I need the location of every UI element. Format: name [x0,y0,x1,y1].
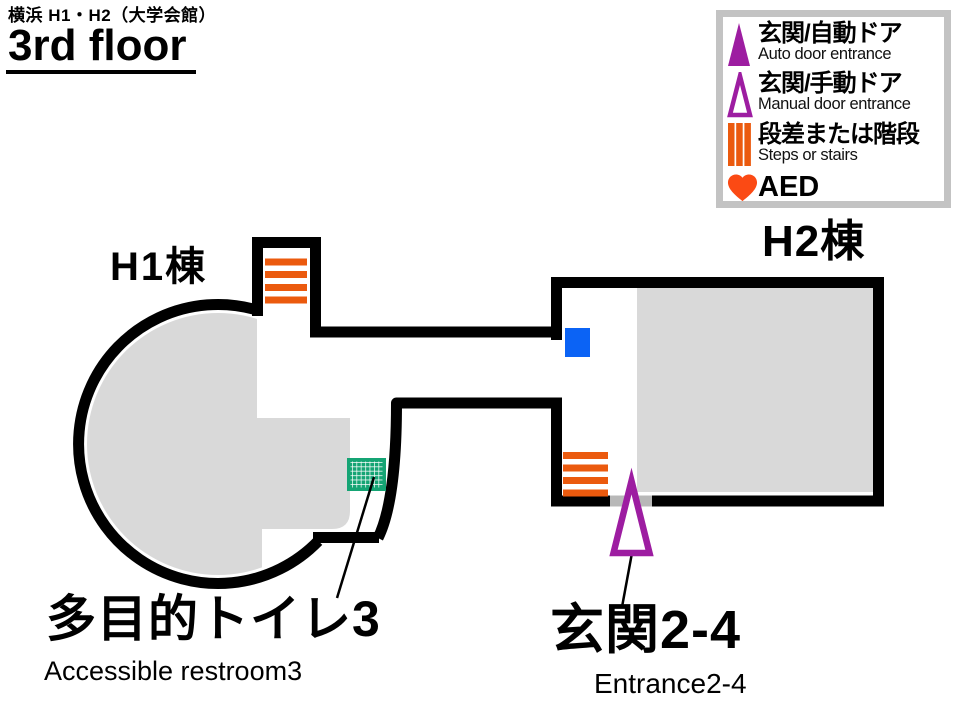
steps-bars-icon [727,123,758,166]
h1-room-band-fill [257,418,350,529]
page-title: 3rd floor [6,24,196,74]
legend-row-manual-door: 玄関/手動ドア Manual door entrance [727,72,941,118]
h2-room-fill [637,288,873,492]
legend-row-aed: AED [727,171,941,204]
legend-label-aed: AED [758,171,819,204]
aed-heart-icon [727,173,758,203]
restroom-callout-jp: 多目的トイレ3 [46,594,381,644]
building-label-h1: H1棟 [110,247,207,287]
legend-label-manual-door: 玄関/手動ドア Manual door entrance [758,72,911,114]
accessible-restroom-marker [347,458,386,491]
stairs-marker-h2 [563,452,608,497]
floor-map-page: 横浜 H1・H2（大学会館） 3rd floor H1棟 H2棟 多目的トイレ3… [0,0,960,720]
legend-row-auto-door: 玄関/自動ドア Auto door entrance [727,22,941,67]
lower-corridor-wall [378,403,562,538]
entrance-callout-jp: 玄関2-4 [550,603,741,657]
building-label-h2: H2棟 [762,220,865,264]
entrance-callout-en: Entrance2-4 [594,670,747,698]
legend-row-steps: 段差または階段 Steps or stairs [727,123,941,166]
auto-door-triangle-filled-icon [727,22,758,67]
manual-door-triangle-outline-icon [727,72,758,118]
legend-label-auto-door: 玄関/自動ドア Auto door entrance [758,22,902,64]
legend-label-steps: 段差または階段 Steps or stairs [758,123,919,165]
map-legend: 玄関/自動ドア Auto door entrance 玄関/手動ドア Manua… [716,10,951,208]
blue-square-marker [565,328,590,357]
restroom-callout-en: Accessible restroom3 [44,658,302,685]
